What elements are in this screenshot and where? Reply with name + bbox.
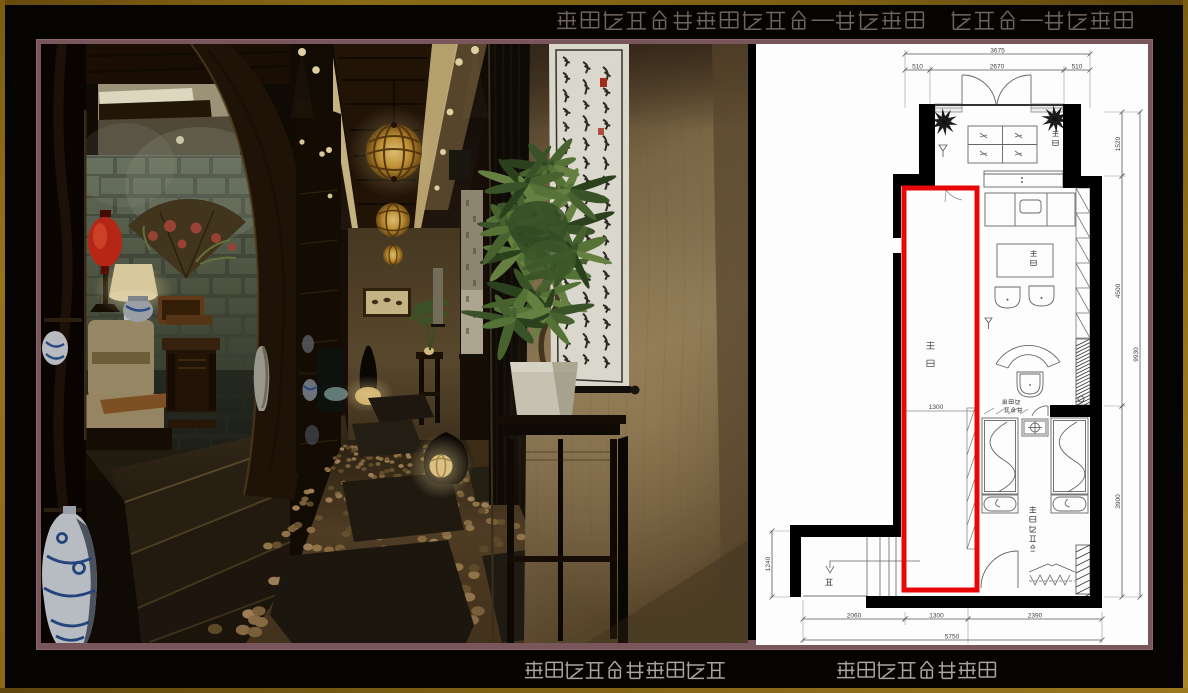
svg-text:3900: 3900	[1115, 494, 1122, 509]
svg-text:1300: 1300	[929, 404, 944, 411]
svg-text:1240: 1240	[765, 556, 772, 571]
svg-text:1520: 1520	[1115, 136, 1122, 151]
svg-text:510: 510	[912, 64, 923, 71]
svg-text:3675: 3675	[990, 48, 1005, 55]
svg-text:2060: 2060	[847, 613, 862, 620]
svg-text:510: 510	[1072, 64, 1083, 71]
svg-text:1300: 1300	[929, 613, 944, 620]
svg-text:5750: 5750	[945, 634, 960, 641]
svg-text:9930: 9930	[1133, 347, 1140, 362]
svg-text:2670: 2670	[990, 64, 1005, 71]
svg-text:2390: 2390	[1028, 613, 1043, 620]
svg-text:4500: 4500	[1115, 283, 1122, 298]
